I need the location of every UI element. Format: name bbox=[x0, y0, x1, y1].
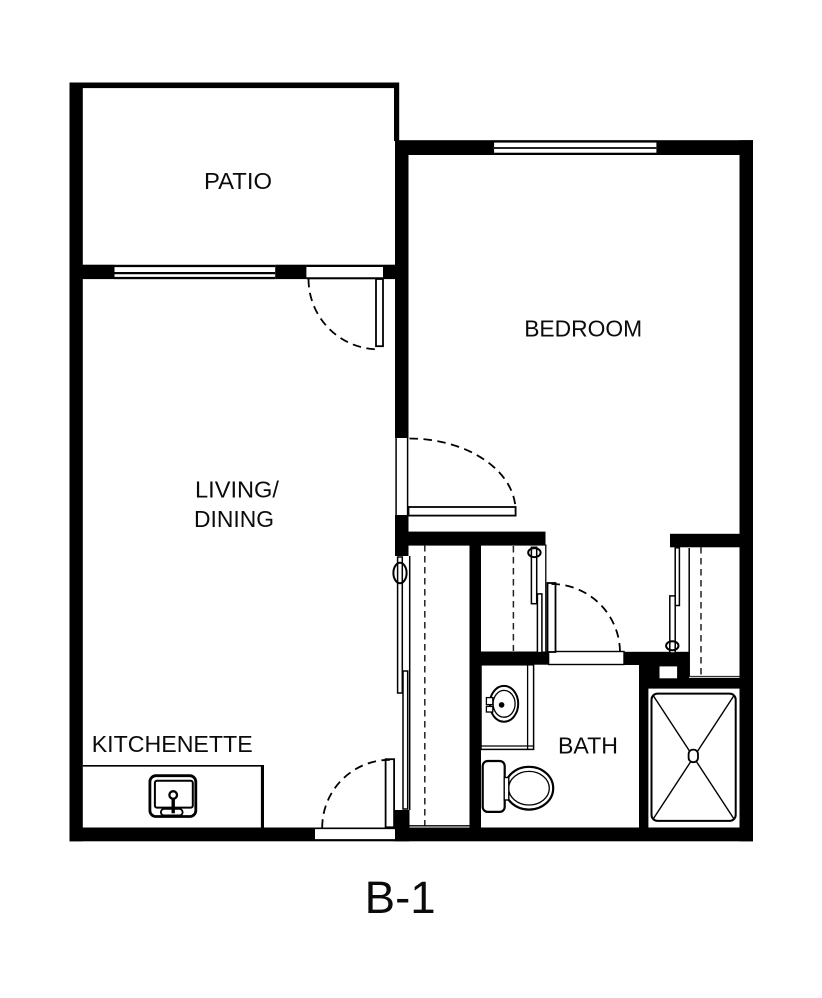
svg-text:B-1: B-1 bbox=[365, 872, 436, 923]
svg-text:BATH: BATH bbox=[558, 732, 618, 758]
svg-text:BEDROOM: BEDROOM bbox=[524, 316, 642, 342]
svg-text:LIVING/: LIVING/ bbox=[195, 476, 279, 502]
svg-text:DINING: DINING bbox=[194, 506, 274, 532]
svg-text:KITCHENETTE: KITCHENETTE bbox=[92, 731, 253, 757]
svg-text:PATIO: PATIO bbox=[204, 168, 272, 194]
